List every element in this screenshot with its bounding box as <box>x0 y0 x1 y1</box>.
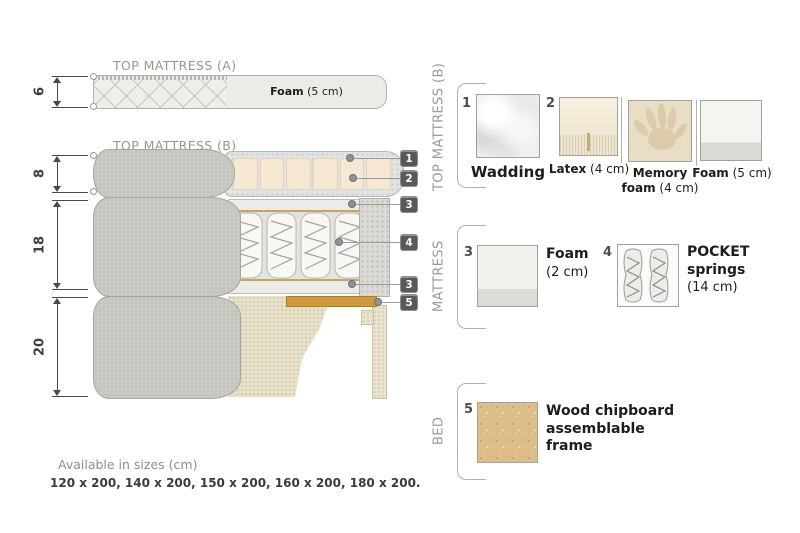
chipboard-swatch <box>477 402 538 463</box>
piping-dot <box>90 152 97 159</box>
tag-4: 4 <box>401 235 417 250</box>
dim-tick <box>52 396 88 397</box>
top-mattress-b-cover <box>93 149 235 198</box>
wadding-swatch <box>476 94 540 158</box>
leader-dot <box>349 174 357 182</box>
piping-dot <box>90 103 97 110</box>
leader-dot <box>374 298 382 306</box>
top-mattress-a-shape: Foam (5 cm) <box>93 75 387 109</box>
top-mattress-a-title: TOP MATTRESS (A) <box>113 58 237 73</box>
bed-leg-notch <box>361 310 374 325</box>
legend-item-5-number: 5 <box>464 402 473 417</box>
legend-item-3-number: 3 <box>464 245 473 260</box>
sizes-list: 120 x 200, 140 x 200, 150 x 200, 160 x 2… <box>50 476 420 490</box>
dim-tick <box>52 192 88 193</box>
dim-arrow <box>52 298 63 396</box>
latex-blocks <box>233 158 391 190</box>
tag-3b: 3 <box>401 277 417 292</box>
leader-dot <box>348 200 356 208</box>
legend-item-2-number: 2 <box>546 96 555 111</box>
leader-dot <box>348 280 356 288</box>
bed-construction-diagram: TOP MATTRESS (A) 6 Foam (5 cm) TOP MATTR… <box>0 0 800 533</box>
pocket-springs-icon <box>618 245 678 306</box>
legend-section-mattress-label: MATTRESS <box>428 225 450 328</box>
piping-dot <box>90 188 97 195</box>
dim-value-20: 20 <box>32 297 48 396</box>
leader-line <box>380 302 401 303</box>
sizes-title: Available in sizes (cm) <box>58 457 197 472</box>
legend-item-1-number: 1 <box>462 96 471 111</box>
bed-cover <box>93 296 241 399</box>
quilted-cover-graphic <box>94 76 227 108</box>
dim-tick <box>52 289 88 290</box>
dim-arrow <box>52 156 63 192</box>
leader-line <box>354 204 401 205</box>
dim-value-6: 6 <box>32 76 48 107</box>
leader-line <box>354 284 401 285</box>
dim-value-8: 8 <box>32 155 48 192</box>
chipboard-label: Wood chipboard assemblable frame <box>546 403 691 456</box>
wood-frame-bar <box>286 296 377 307</box>
legend-item-4-number: 4 <box>603 245 612 260</box>
memory-foam-label: Memory foam (4 cm) <box>618 166 702 196</box>
foam-2cm-label: Foam (2 cm) <box>546 246 606 281</box>
leader-dot <box>335 238 343 246</box>
foam-2cm-swatch <box>477 245 538 307</box>
leader-line <box>355 178 401 179</box>
legend-section-top-mattress-b-label: TOP MATTRESS (B) <box>428 64 450 190</box>
leader-dot <box>346 154 354 162</box>
pocket-spring-graphic <box>266 212 297 279</box>
dim-arrow <box>52 201 63 289</box>
memory-foam-swatch <box>628 100 692 162</box>
mattress-side-fabric <box>359 198 390 297</box>
foam-5cm-label: Foam (5 cm) <box>692 166 772 181</box>
tag-2: 2 <box>401 171 417 186</box>
tag-5: 5 <box>401 295 417 310</box>
pocket-springs-label: POCKET springs (14 cm) <box>687 244 763 297</box>
leader-line <box>341 242 401 243</box>
dim-value-18: 18 <box>32 200 48 289</box>
tag-1: 1 <box>401 151 417 166</box>
handprint-graphic <box>629 101 691 161</box>
legend-divider <box>621 97 622 163</box>
piping-dot <box>90 73 97 80</box>
foam-a-label: Foam (5 cm) <box>270 85 343 99</box>
pocket-springs-swatch <box>617 244 679 307</box>
latex-swatch <box>559 97 618 156</box>
tag-3: 3 <box>401 197 417 212</box>
wadding-label: Wadding <box>462 163 554 182</box>
bed-leg <box>372 305 387 399</box>
mattress-cover <box>93 197 241 297</box>
dim-arrow <box>52 77 63 107</box>
legend-divider <box>696 100 697 166</box>
foam-5cm-swatch <box>700 100 762 161</box>
dim-tick <box>52 107 88 108</box>
foam-layer-a: Foam (5 cm) <box>227 76 386 108</box>
legend-section-bed-label: BED <box>428 383 450 478</box>
bed-beige-fabric <box>228 296 328 397</box>
quilt-trim <box>94 76 227 80</box>
leader-line <box>352 158 401 159</box>
pocket-spring-graphic <box>300 212 331 279</box>
